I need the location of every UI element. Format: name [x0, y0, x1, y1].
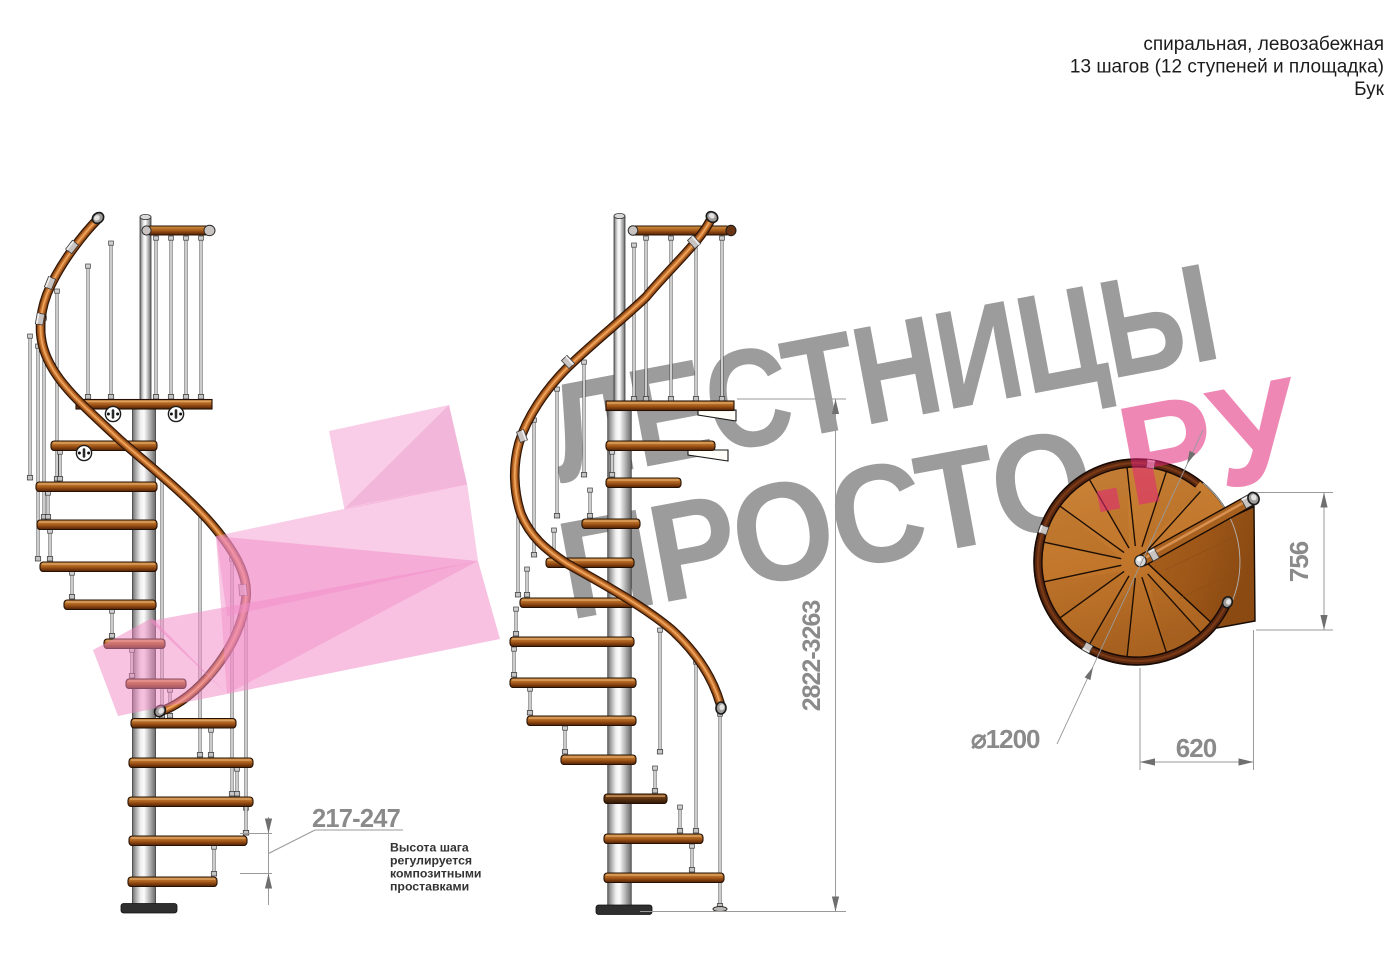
svg-text:Высота шага: Высота шага — [390, 841, 469, 855]
svg-text:217-247: 217-247 — [312, 805, 401, 833]
svg-text:620: 620 — [1176, 733, 1217, 763]
svg-text:2822-3263: 2822-3263 — [798, 601, 826, 712]
svg-text:регулируется: регулируется — [390, 854, 472, 868]
svg-text:756: 756 — [1284, 541, 1314, 582]
svg-text:13 шагов (12 ступеней и площад: 13 шагов (12 ступеней и площадка) — [1070, 57, 1384, 78]
svg-text:Бук: Бук — [1354, 79, 1385, 100]
svg-text:проставками: проставками — [390, 880, 469, 894]
svg-text:⌀1200: ⌀1200 — [971, 724, 1040, 754]
svg-text:спиральная, левозабежная: спиральная, левозабежная — [1143, 34, 1384, 55]
svg-text:композитными: композитными — [390, 867, 482, 881]
